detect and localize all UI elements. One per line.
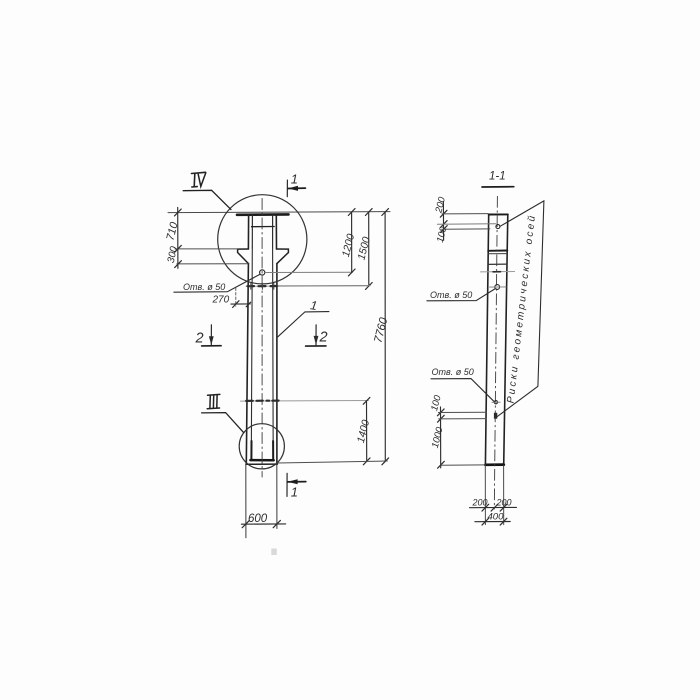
svg-text:1400: 1400 [355,419,372,445]
svg-text:100: 100 [429,393,444,412]
svg-text:Риски геометрических осей: Риски геометрических осей [506,213,539,404]
svg-text:2: 2 [319,330,328,346]
svg-text:Отв. ø 50: Отв. ø 50 [432,367,474,377]
svg-text:400: 400 [488,512,505,523]
svg-text:200: 200 [472,497,488,507]
svg-text:Отв. ø 50: Отв. ø 50 [430,290,472,300]
svg-text:7760: 7760 [372,316,390,344]
svg-text:1: 1 [291,172,298,187]
svg-text:1: 1 [309,298,318,313]
svg-text:100: 100 [435,225,450,244]
svg-text:1200: 1200 [340,233,357,259]
svg-text:1: 1 [291,485,298,500]
svg-text:1000: 1000 [430,425,446,449]
svg-text:1500: 1500 [355,236,372,262]
svg-text:710: 710 [165,220,181,242]
svg-text:600: 600 [248,513,268,525]
svg-text:270: 270 [212,294,230,305]
svg-text:1-1: 1-1 [489,171,506,183]
svg-text:200: 200 [496,497,512,507]
svg-text:2: 2 [195,331,204,347]
svg-text:Отв. ø 50: Отв. ø 50 [183,282,225,292]
